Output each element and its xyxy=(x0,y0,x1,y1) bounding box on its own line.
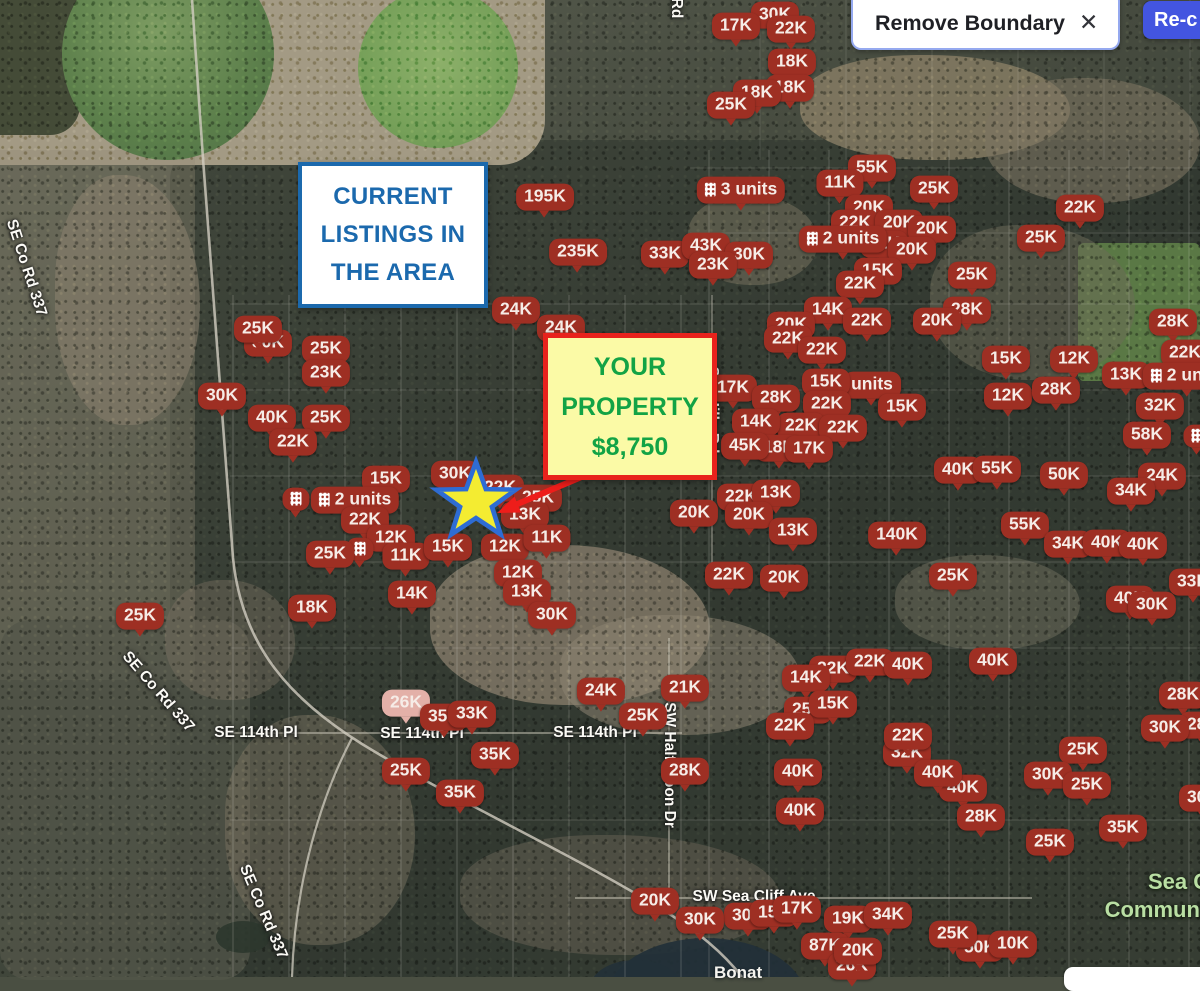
recenter-button[interactable]: Re-c xyxy=(1143,1,1200,39)
listings-note-line2: LISTINGS IN xyxy=(302,216,484,254)
close-icon[interactable]: ✕ xyxy=(1079,9,1098,36)
current-listings-note: CURRENT LISTINGS IN THE AREA xyxy=(298,162,488,308)
partial-label-box xyxy=(1064,967,1200,991)
remove-boundary-button[interactable]: Remove Boundary ✕ xyxy=(851,0,1120,50)
property-note-line1: YOUR xyxy=(548,347,712,387)
listings-note-line3: THE AREA xyxy=(302,254,484,292)
property-note-line2: PROPERTY xyxy=(548,387,712,427)
annotation-layer xyxy=(0,0,1200,977)
listings-note-line1: CURRENT xyxy=(302,178,484,216)
property-star-icon[interactable] xyxy=(436,462,516,534)
property-price: $8,750 xyxy=(548,427,712,467)
your-property-note: YOUR PROPERTY $8,750 xyxy=(543,333,717,480)
map-screenshot: { "toolbar": { "remove_boundary_label": … xyxy=(0,0,1200,977)
recenter-button-label: Re-c xyxy=(1154,9,1197,32)
remove-boundary-label: Remove Boundary xyxy=(875,11,1065,36)
